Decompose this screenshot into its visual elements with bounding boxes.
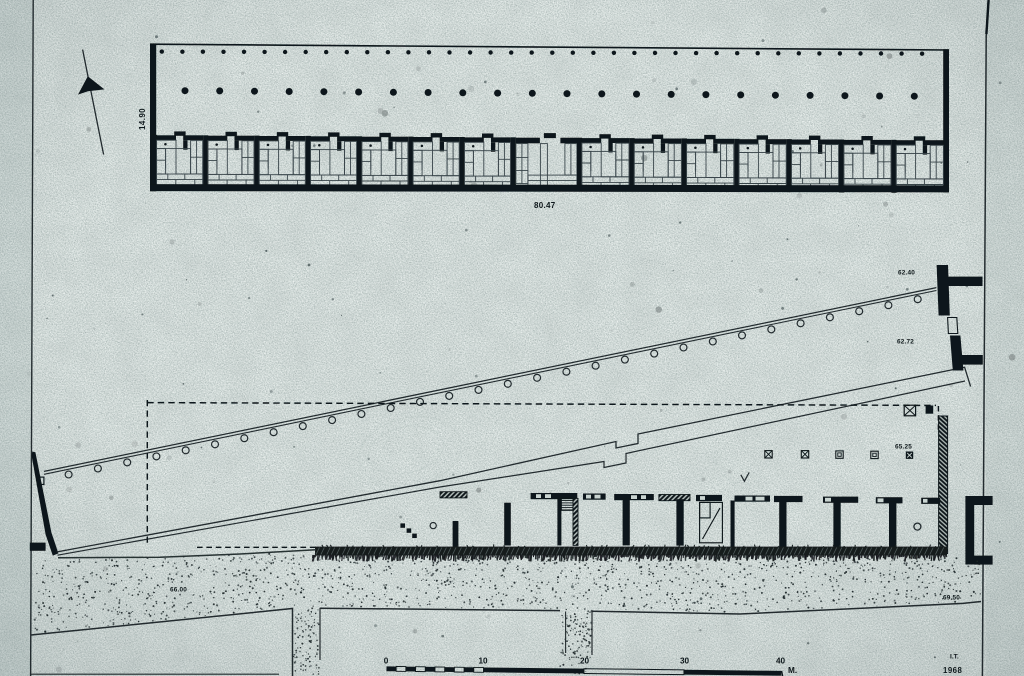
svg-text:65.25: 65.25 xyxy=(895,444,912,451)
svg-text:66.00: 66.00 xyxy=(170,587,187,594)
svg-text:I.T.: I.T. xyxy=(950,654,959,661)
svg-text:62.40: 62.40 xyxy=(898,270,915,277)
svg-text:69.50: 69.50 xyxy=(943,595,960,602)
svg-text:0: 0 xyxy=(384,657,389,666)
svg-text:1968: 1968 xyxy=(943,666,963,675)
svg-text:14.90: 14.90 xyxy=(138,108,147,130)
svg-text:20: 20 xyxy=(580,657,590,666)
svg-text:30: 30 xyxy=(680,657,690,666)
svg-text:M.: M. xyxy=(788,666,797,675)
svg-text:10: 10 xyxy=(478,657,488,666)
svg-text:62.72: 62.72 xyxy=(897,339,914,346)
svg-text:40: 40 xyxy=(776,657,786,666)
svg-text:80.47: 80.47 xyxy=(534,201,556,210)
